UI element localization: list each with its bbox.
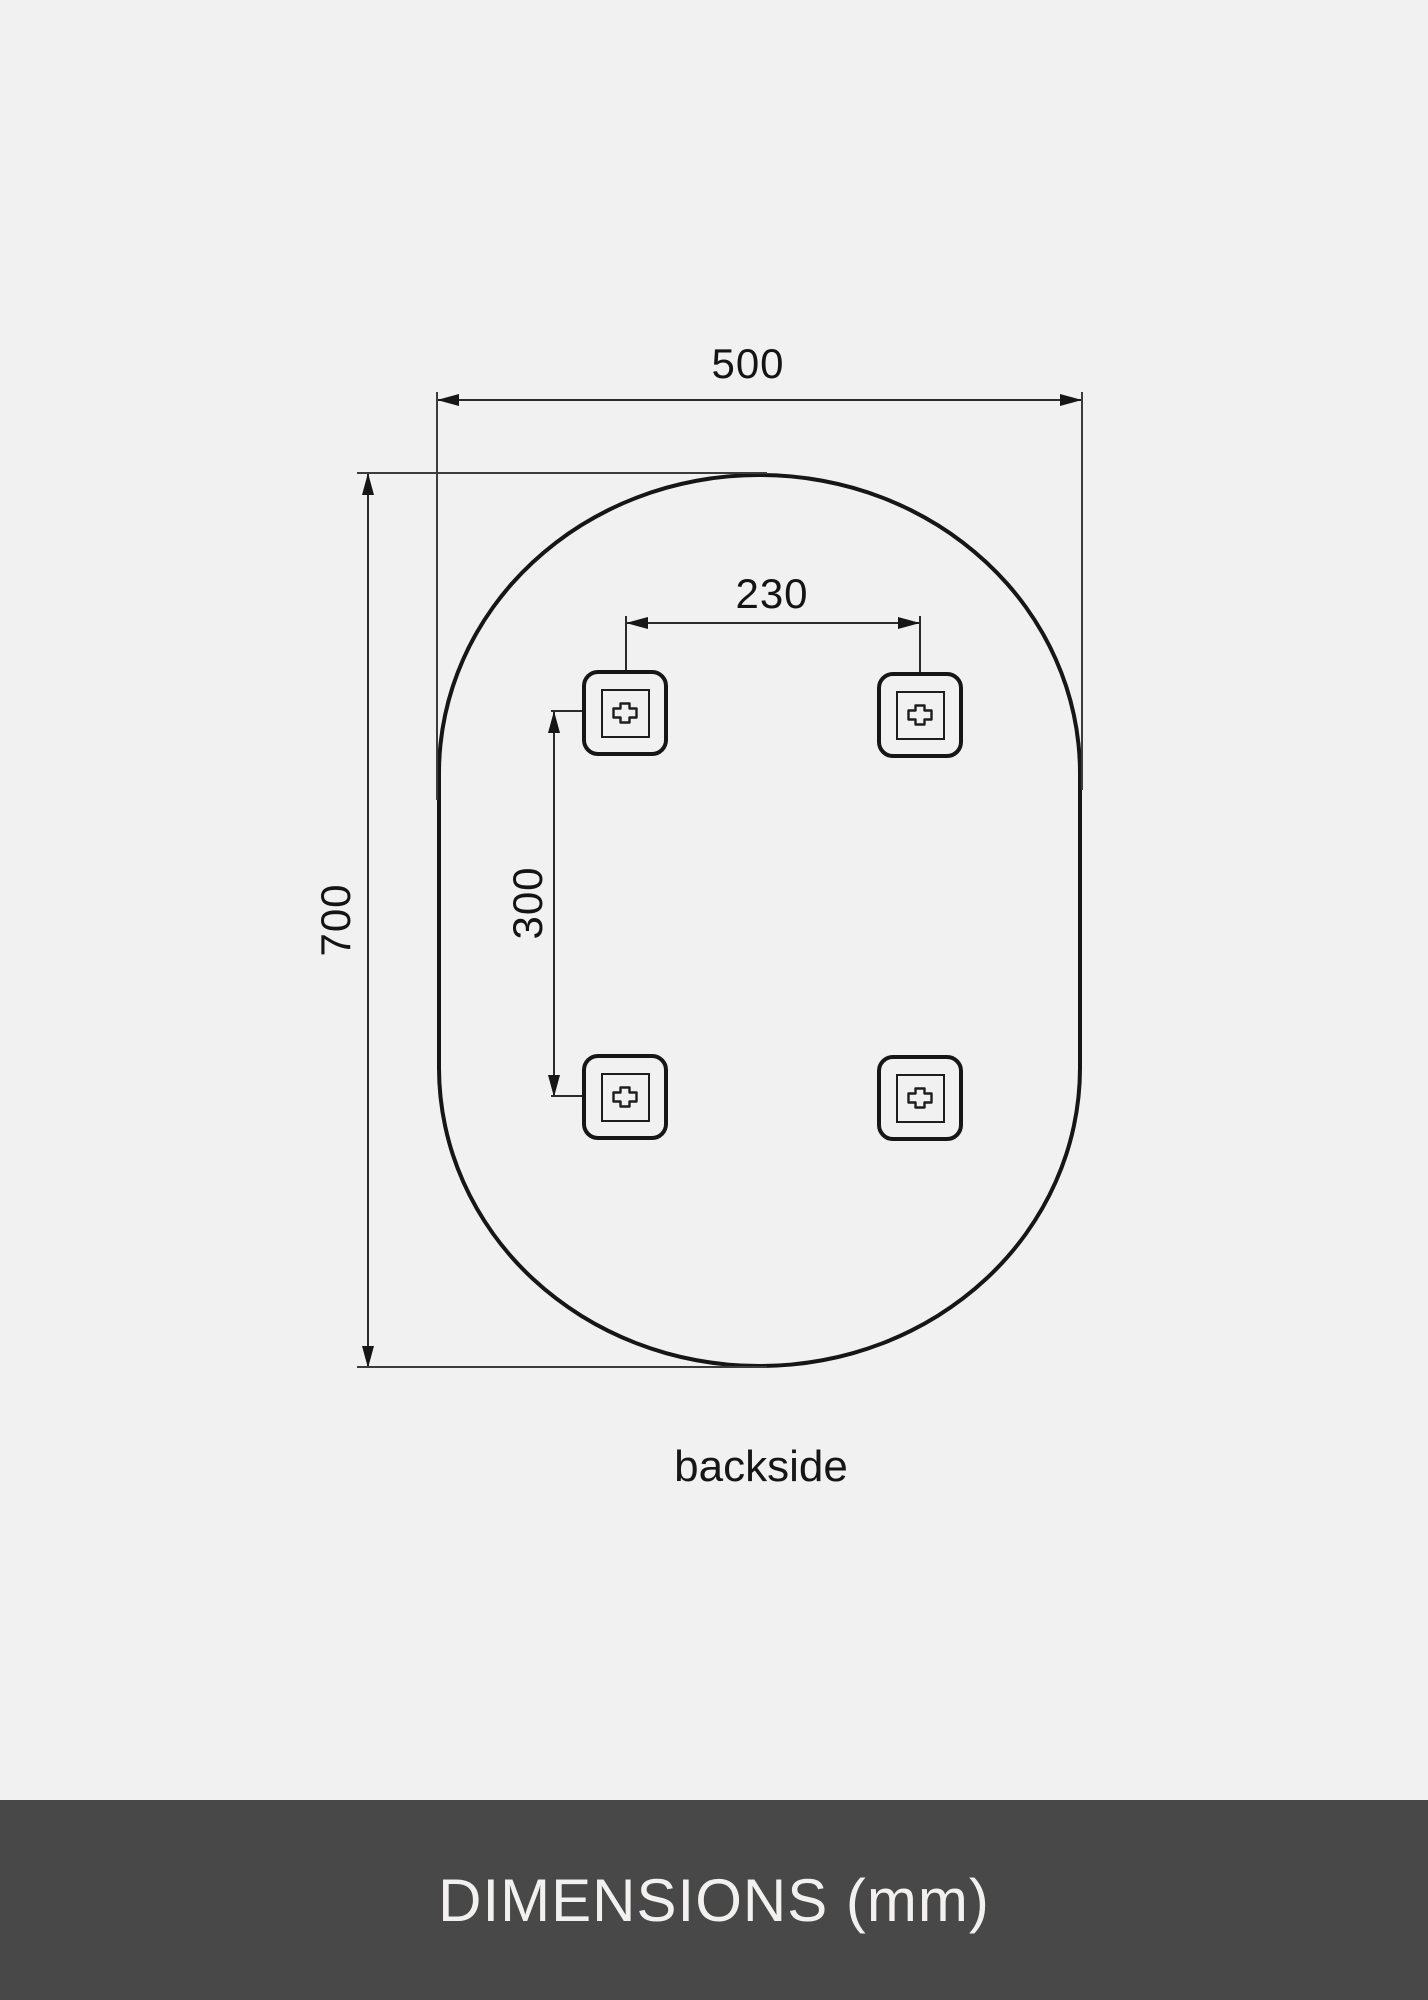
plus-icon bbox=[907, 1087, 933, 1109]
mount-bracket-top-right bbox=[877, 672, 963, 758]
footer-title: DIMENSIONS (mm) bbox=[438, 1866, 990, 1935]
dim-width-line bbox=[437, 399, 1082, 401]
arrow-right-icon bbox=[898, 617, 920, 629]
dim-height-line bbox=[367, 473, 369, 1368]
arrow-up-icon bbox=[548, 711, 560, 733]
dim-width-value: 500 bbox=[711, 340, 784, 388]
arrow-left-icon bbox=[626, 617, 648, 629]
plus-icon bbox=[612, 1086, 638, 1108]
bracket-inner-plate bbox=[601, 1073, 650, 1122]
bracket-inner-plate bbox=[896, 691, 945, 740]
dim-spacing-h-tick-right bbox=[919, 616, 921, 672]
arrow-right-icon bbox=[1060, 394, 1082, 406]
footer-bar: DIMENSIONS (mm) bbox=[0, 1800, 1428, 2000]
mount-bracket-bottom-left bbox=[582, 1054, 668, 1140]
dimension-diagram: 500 700 230 300 bbox=[0, 0, 1428, 2000]
plus-icon bbox=[907, 704, 933, 726]
dim-spacing-v-value: 300 bbox=[504, 866, 552, 939]
plus-icon bbox=[612, 702, 638, 724]
dim-height-extension-top bbox=[357, 472, 767, 474]
arrow-left-icon bbox=[437, 394, 459, 406]
dim-height-extension-bottom bbox=[357, 1366, 767, 1368]
dim-spacing-h-tick-left bbox=[625, 616, 627, 670]
arrow-down-icon bbox=[548, 1075, 560, 1097]
dim-height-value: 700 bbox=[312, 883, 360, 956]
dim-spacing-h-line bbox=[626, 622, 920, 624]
dim-width-extension-right bbox=[1081, 392, 1083, 790]
arrow-down-icon bbox=[362, 1346, 374, 1368]
dim-spacing-v-tick-top bbox=[551, 710, 583, 712]
bracket-inner-plate bbox=[601, 689, 650, 738]
dim-spacing-h-value: 230 bbox=[735, 570, 808, 618]
dim-spacing-v-tick-bottom bbox=[551, 1095, 583, 1097]
mount-bracket-bottom-right bbox=[877, 1055, 963, 1141]
dim-spacing-v-line bbox=[553, 711, 555, 1097]
bracket-inner-plate bbox=[896, 1074, 945, 1123]
view-label: backside bbox=[674, 1442, 848, 1492]
mount-bracket-top-left bbox=[582, 670, 668, 756]
arrow-up-icon bbox=[362, 473, 374, 495]
dim-width-extension-left bbox=[436, 392, 438, 800]
